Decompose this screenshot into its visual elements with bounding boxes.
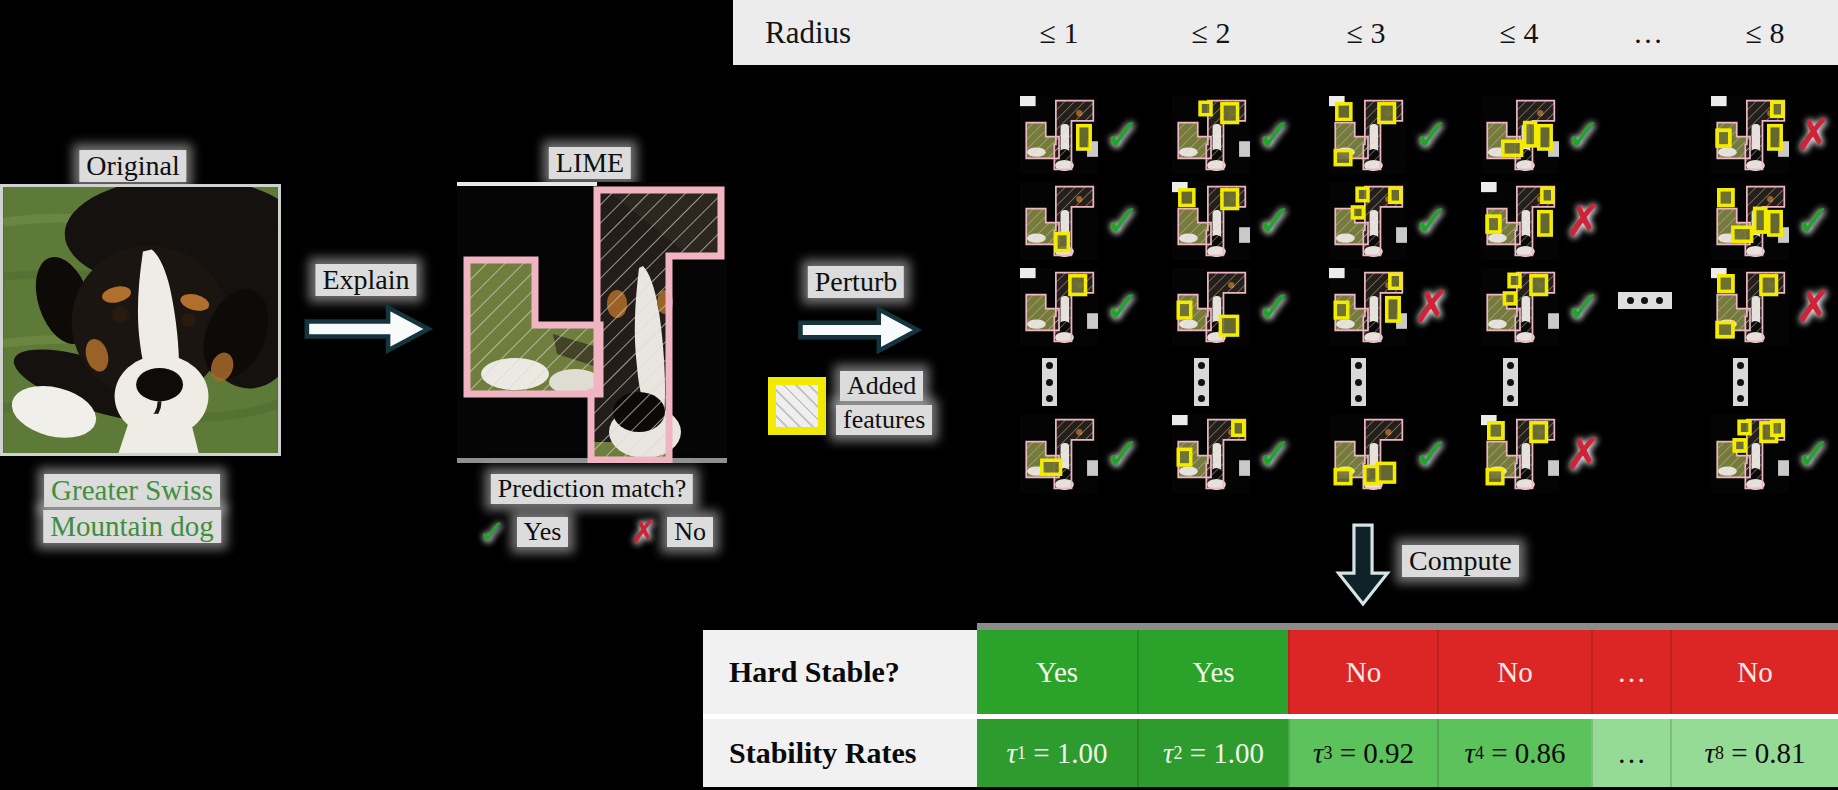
hard-stable-cell-1: Yes bbox=[977, 630, 1137, 714]
stability-rate-cell-1: τ1 = 1.00 bbox=[977, 719, 1137, 787]
predicted-class-line1: Greater Swiss bbox=[44, 474, 220, 507]
hard-stable-cell-6: No bbox=[1670, 630, 1838, 714]
perturbed-sample-r3-c1 bbox=[1020, 268, 1098, 346]
added-features-swatch bbox=[768, 377, 826, 435]
figure-canvas: Radius ≤ 1≤ 2≤ 3≤ 4…≤ 8 Original bbox=[0, 0, 1838, 790]
added-features-line2: features bbox=[836, 405, 932, 435]
explain-label-wrap: Explain bbox=[315, 264, 416, 296]
perturbed-sample-r3-c3 bbox=[1329, 268, 1407, 346]
check-icon-r2-c5: ✓ bbox=[1795, 199, 1832, 243]
perturbed-sample-r1-c2 bbox=[1172, 96, 1250, 174]
stability-rate-cell-4: τ4 = 0.86 bbox=[1437, 719, 1591, 787]
check-icon: ✓ bbox=[478, 512, 507, 552]
stability-rate-cell-2: τ2 = 1.00 bbox=[1137, 719, 1288, 787]
check-icon-r4-c2: ✓ bbox=[1256, 432, 1293, 476]
perturbed-sample-r2-c2 bbox=[1172, 182, 1250, 260]
prediction-match-question-wrap: Prediction match? bbox=[491, 474, 693, 504]
check-icon-r2-c3: ✓ bbox=[1413, 199, 1450, 243]
perturbed-sample-r4-c3 bbox=[1329, 415, 1407, 493]
stability-rate-cell-6: τ8 = 0.81 bbox=[1670, 719, 1838, 787]
perturbed-sample-r3-c5 bbox=[1711, 268, 1789, 346]
perturbed-sample-r2-c1 bbox=[1020, 182, 1098, 260]
stability-rate-cell-3: τ3 = 0.92 bbox=[1288, 719, 1437, 787]
cross-icon: ✗ bbox=[630, 513, 657, 551]
lime-explanation-image bbox=[457, 182, 727, 463]
row-ellipsis bbox=[1618, 292, 1672, 309]
check-icon-r1-c2: ✓ bbox=[1256, 113, 1293, 157]
radius-col-label-4: ≤ 4 bbox=[1500, 0, 1539, 65]
cross-icon-r1-c5: ✗ bbox=[1795, 113, 1832, 157]
hard-stable-cell-4: No bbox=[1437, 630, 1591, 714]
check-icon-r4-c5: ✓ bbox=[1795, 432, 1832, 476]
perturbed-sample-r4-c4 bbox=[1481, 415, 1559, 493]
prediction-match-question: Prediction match? bbox=[491, 474, 693, 504]
no-label: No bbox=[667, 517, 713, 547]
original-title-wrap: Original bbox=[79, 150, 186, 182]
cross-icon-r3-c3: ✗ bbox=[1413, 285, 1450, 329]
column-ellipsis-c1 bbox=[1042, 358, 1057, 406]
radius-header-band: Radius ≤ 1≤ 2≤ 3≤ 4…≤ 8 bbox=[733, 0, 1838, 65]
perturbed-sample-r1-c4 bbox=[1481, 96, 1559, 174]
perturbed-sample-r1-c1 bbox=[1020, 96, 1098, 174]
check-icon-r4-c3: ✓ bbox=[1413, 432, 1450, 476]
prediction-match-legend: ✓ Yes ✗ No bbox=[478, 512, 713, 552]
radius-col-label-5: … bbox=[1633, 0, 1663, 65]
cross-icon-r4-c4: ✗ bbox=[1565, 432, 1602, 476]
cross-icon-r3-c5: ✗ bbox=[1795, 285, 1832, 329]
check-icon-r3-c4: ✓ bbox=[1565, 285, 1602, 329]
hard-stable-row-label: Hard Stable? bbox=[703, 630, 977, 714]
lime-title: LIME bbox=[549, 147, 631, 179]
radius-col-label-1: ≤ 1 bbox=[1040, 0, 1079, 65]
perturbed-sample-r1-c3 bbox=[1329, 96, 1407, 174]
radius-col-label-6: ≤ 8 bbox=[1746, 0, 1785, 65]
check-icon-r3-c1: ✓ bbox=[1104, 285, 1141, 329]
check-icon-r3-c2: ✓ bbox=[1256, 285, 1293, 329]
explain-arrow-icon bbox=[300, 301, 435, 357]
compute-arrow-icon bbox=[1334, 521, 1392, 609]
perturbed-sample-r4-c1 bbox=[1020, 415, 1098, 493]
perturb-arrow-icon bbox=[790, 303, 928, 357]
hard-stable-cell-2: Yes bbox=[1137, 630, 1288, 714]
perturb-label-wrap: Perturb bbox=[808, 266, 904, 298]
check-icon-r2-c2: ✓ bbox=[1256, 199, 1293, 243]
check-icon-r1-c3: ✓ bbox=[1413, 113, 1450, 157]
explain-label: Explain bbox=[315, 264, 416, 296]
perturbed-sample-r1-c5 bbox=[1711, 96, 1789, 174]
check-icon-r4-c1: ✓ bbox=[1104, 432, 1141, 476]
perturb-label: Perturb bbox=[808, 266, 904, 298]
column-ellipsis-c2 bbox=[1194, 358, 1209, 406]
check-icon-r1-c4: ✓ bbox=[1565, 113, 1602, 157]
dog-photo-illustration bbox=[3, 187, 278, 453]
column-ellipsis-c4 bbox=[1503, 358, 1518, 406]
perturbed-sample-r3-c2 bbox=[1172, 268, 1250, 346]
radius-col-label-3: ≤ 3 bbox=[1347, 0, 1386, 65]
added-features-line1-wrap: Added bbox=[840, 371, 923, 401]
column-ellipsis-c3 bbox=[1351, 358, 1366, 406]
added-features-line2-wrap: features bbox=[836, 405, 932, 435]
prediction-caption-line2-wrap: Mountain dog bbox=[43, 510, 221, 543]
radius-header-label: Radius bbox=[765, 0, 851, 65]
prediction-caption-line1-wrap: Greater Swiss bbox=[44, 474, 220, 507]
stability-rates-row-label: Stability Rates bbox=[703, 719, 977, 787]
yes-label: Yes bbox=[517, 517, 569, 547]
cross-icon-r2-c4: ✗ bbox=[1565, 199, 1602, 243]
compute-label-wrap: Compute bbox=[1402, 545, 1519, 577]
column-ellipsis-c5 bbox=[1733, 358, 1748, 406]
hard-stable-cell-5: … bbox=[1591, 630, 1670, 714]
original-dog-image bbox=[0, 184, 281, 456]
perturbed-sample-r4-c5 bbox=[1711, 415, 1789, 493]
added-features-line1: Added bbox=[840, 371, 923, 401]
stability-rate-cell-5: … bbox=[1591, 719, 1670, 787]
perturbed-sample-r4-c2 bbox=[1172, 415, 1250, 493]
radius-col-label-2: ≤ 2 bbox=[1192, 0, 1231, 65]
compute-label: Compute bbox=[1402, 545, 1519, 577]
perturbed-sample-r2-c5 bbox=[1711, 182, 1789, 260]
perturbed-sample-r2-c3 bbox=[1329, 182, 1407, 260]
perturbed-sample-r2-c4 bbox=[1481, 182, 1559, 260]
lime-title-wrap: LIME bbox=[549, 147, 631, 179]
check-icon-r2-c1: ✓ bbox=[1104, 199, 1141, 243]
original-title: Original bbox=[79, 150, 186, 182]
perturbed-sample-r3-c4 bbox=[1481, 268, 1559, 346]
predicted-class-line2: Mountain dog bbox=[43, 510, 221, 543]
hard-stable-cell-3: No bbox=[1288, 630, 1437, 714]
check-icon-r1-c1: ✓ bbox=[1104, 113, 1141, 157]
